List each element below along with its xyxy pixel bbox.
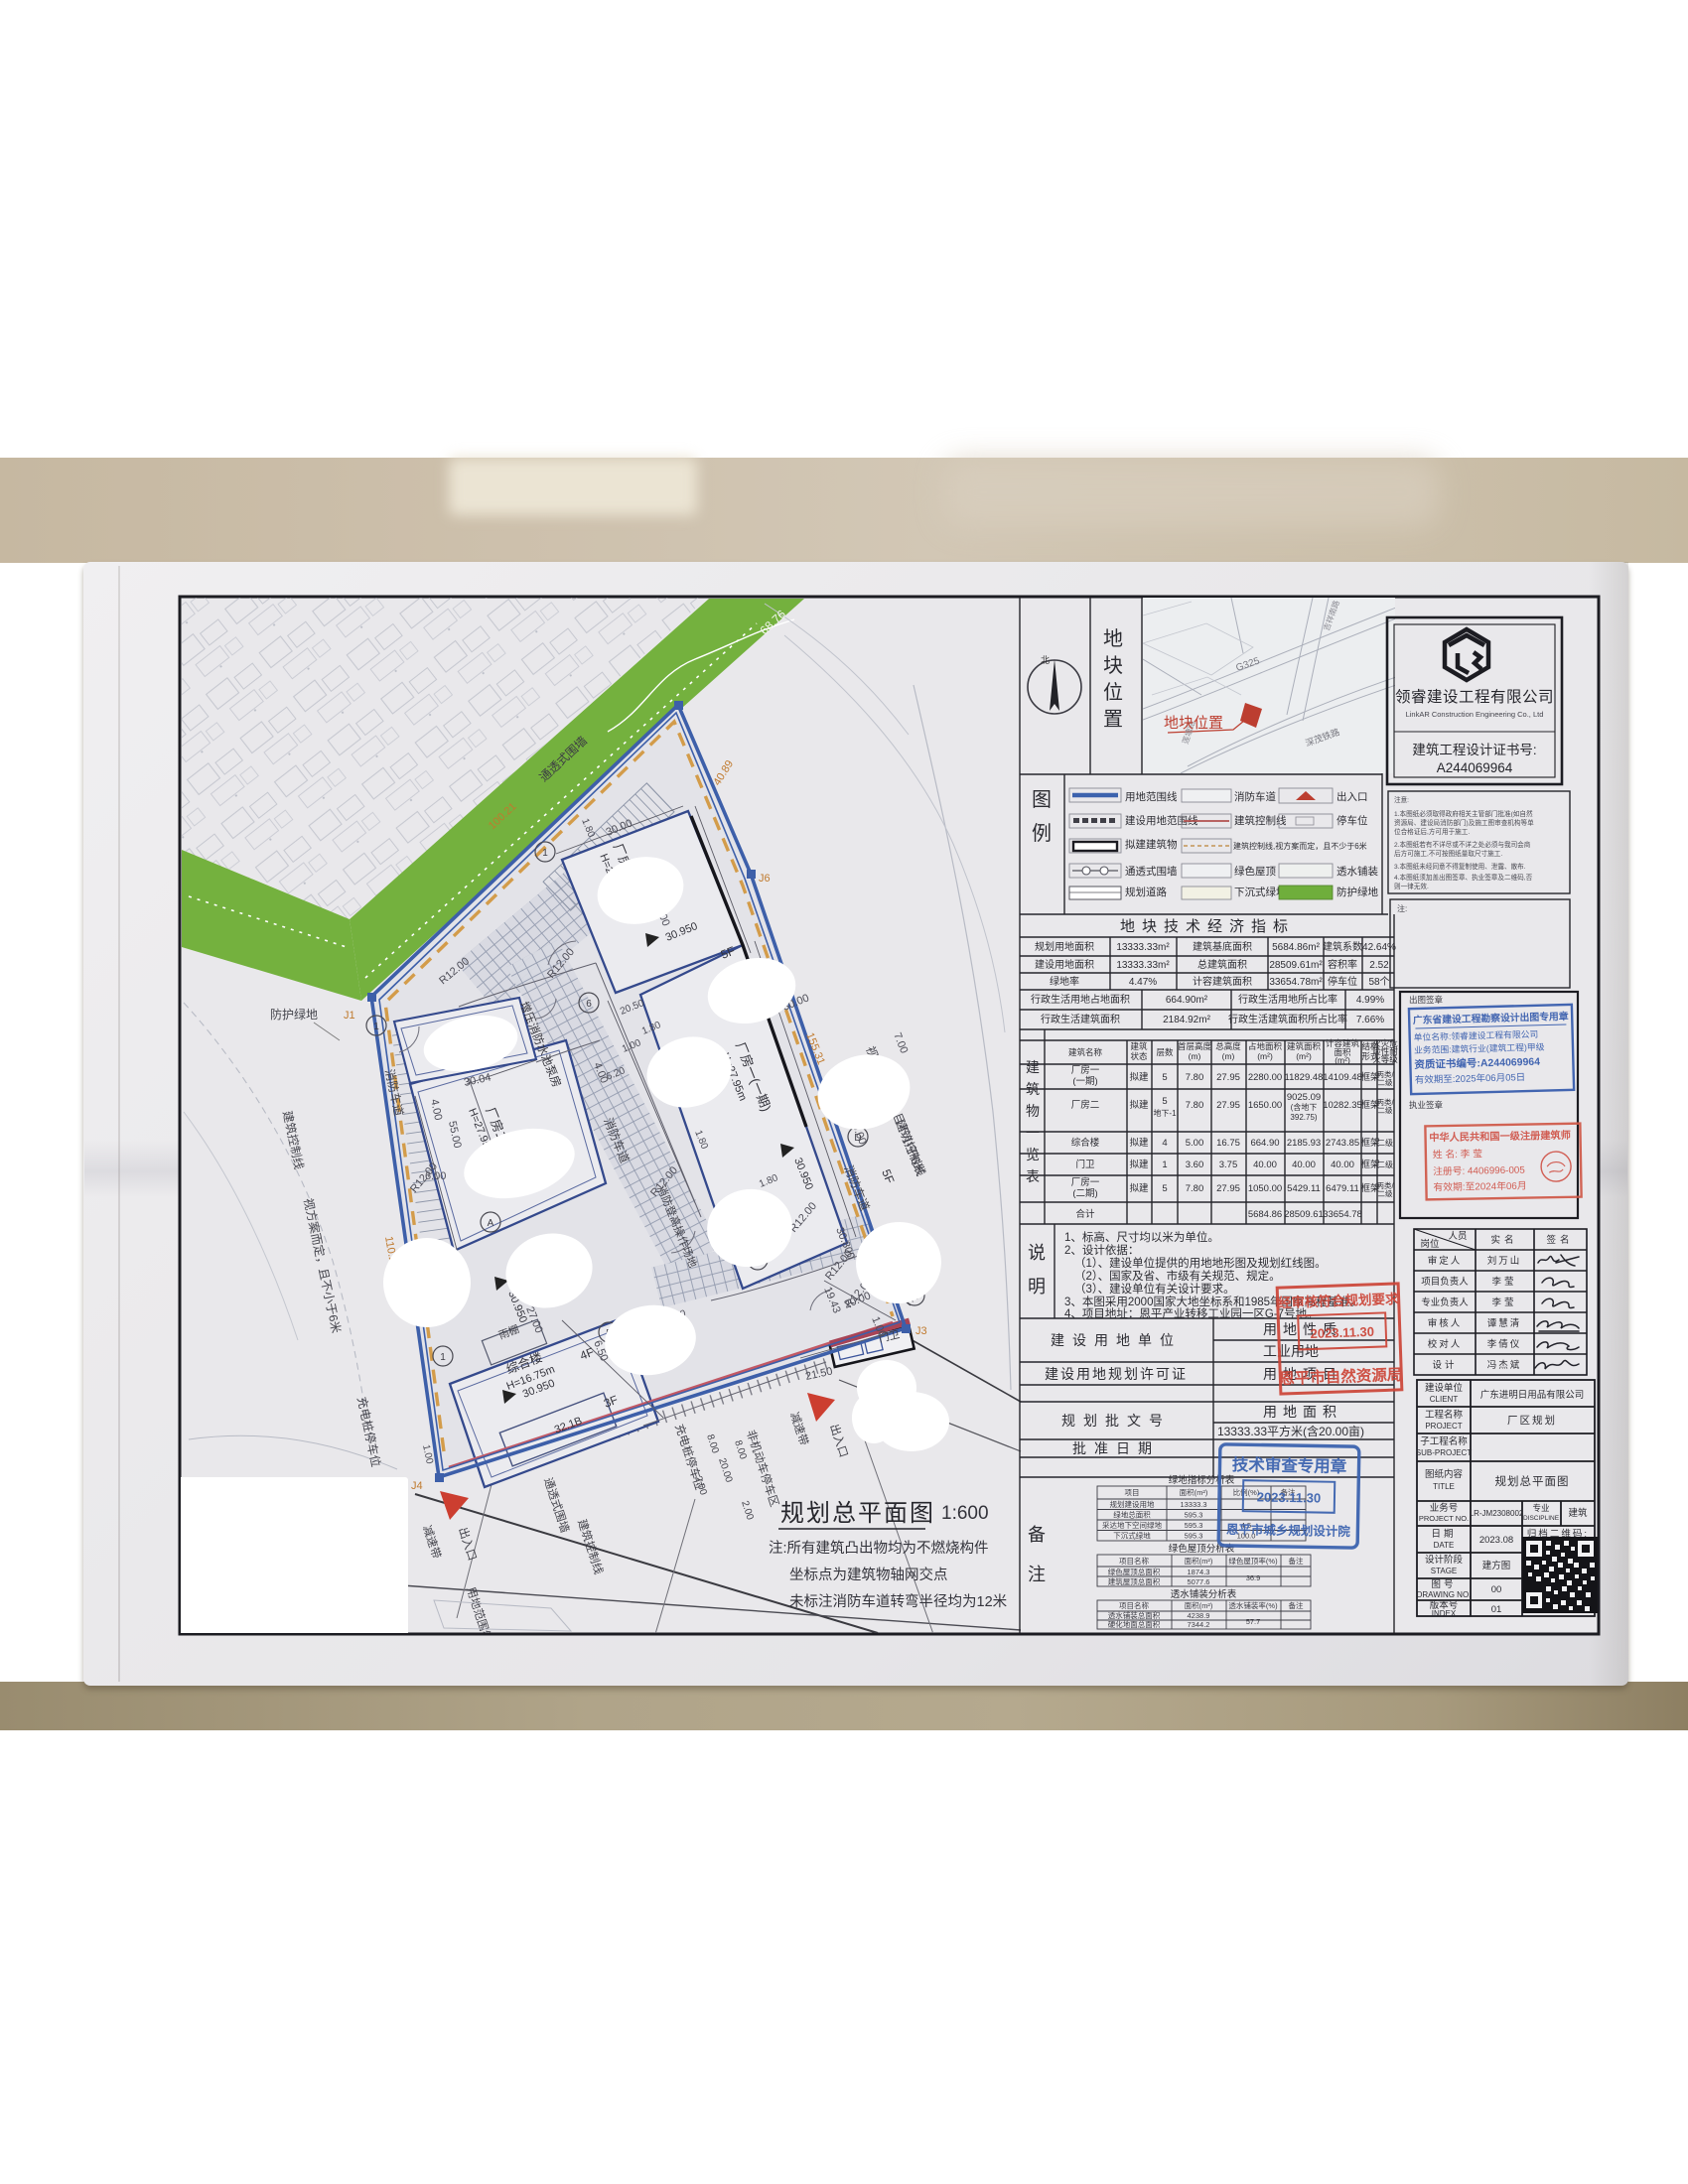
svg-text:绿色屋顶率(%): 绿色屋顶率(%) bbox=[1228, 1556, 1278, 1566]
svg-text:未标注消防车道转弯半径均为12米: 未标注消防车道转弯半径均为12米 bbox=[789, 1593, 1008, 1610]
svg-text:批准日期: 批准日期 bbox=[1072, 1440, 1160, 1456]
svg-text:刘万山: 刘万山 bbox=[1487, 1255, 1522, 1267]
svg-text:二级: 二级 bbox=[1378, 1105, 1394, 1115]
svg-text:面积(m²): 面积(m²) bbox=[1180, 1487, 1208, 1497]
svg-text:火等级: 火等级 bbox=[1372, 1054, 1398, 1064]
svg-text:层数: 层数 bbox=[1156, 1047, 1174, 1057]
svg-text:厂区规划: 厂区规划 bbox=[1507, 1414, 1557, 1427]
svg-text:2.52: 2.52 bbox=[1369, 960, 1389, 971]
svg-text:33654.78: 33654.78 bbox=[1323, 1209, 1362, 1220]
svg-text:注:所有建筑凸出物均为不燃烧构件: 注:所有建筑凸出物均为不燃烧构件 bbox=[769, 1539, 989, 1557]
svg-text:实名: 实名 bbox=[1490, 1234, 1517, 1246]
svg-text:DATE: DATE bbox=[1434, 1541, 1455, 1550]
svg-text:SUB-PROJECT: SUB-PROJECT bbox=[1416, 1448, 1473, 1457]
svg-text:4: 4 bbox=[1162, 1138, 1167, 1149]
svg-text:595.3: 595.3 bbox=[1185, 1532, 1203, 1541]
svg-text:28509.61: 28509.61 bbox=[1284, 1209, 1324, 1220]
svg-text:签名: 签名 bbox=[1546, 1234, 1573, 1246]
svg-text:块: 块 bbox=[1103, 654, 1123, 677]
svg-text:J6: J6 bbox=[759, 873, 771, 885]
svg-text:绿色屋顶: 绿色屋顶 bbox=[1234, 865, 1276, 878]
svg-text:1、标高、尺寸均以米为单位。: 1、标高、尺寸均以米为单位。 bbox=[1064, 1230, 1219, 1244]
svg-text:建筑面积: 建筑面积 bbox=[1287, 1041, 1322, 1051]
svg-text:14109.48: 14109.48 bbox=[1323, 1072, 1362, 1083]
svg-text:A244069964: A244069964 bbox=[1437, 760, 1513, 775]
svg-text:首层高度: 首层高度 bbox=[1178, 1041, 1212, 1051]
svg-text:28509.61m²: 28509.61m² bbox=[1269, 960, 1323, 971]
svg-text:LinkAR Construction Engineerin: LinkAR Construction Engineering Co., Ltd bbox=[1406, 710, 1544, 719]
svg-text:规划批文号: 规划批文号 bbox=[1061, 1413, 1171, 1429]
svg-text:(m²): (m²) bbox=[1257, 1051, 1273, 1061]
svg-text:J3: J3 bbox=[915, 1325, 927, 1337]
svg-text:则一律无效.: 则一律无效. bbox=[1394, 882, 1429, 890]
svg-text:（3）、建设单位有关设计要求。: （3）、建设单位有关设计要求。 bbox=[1074, 1282, 1235, 1296]
svg-text:透水铺装: 透水铺装 bbox=[1336, 865, 1378, 878]
svg-text:建设用地单位: 建设用地单位 bbox=[1051, 1332, 1182, 1348]
svg-text:注意:: 注意: bbox=[1394, 795, 1409, 804]
svg-text:PROJECT NO.: PROJECT NO. bbox=[1419, 1514, 1469, 1523]
svg-text:33654.78m²: 33654.78m² bbox=[1269, 977, 1323, 988]
svg-text:拟建建筑物: 拟建建筑物 bbox=[1125, 838, 1178, 851]
svg-text:绿地总面积: 绿地总面积 bbox=[1113, 1510, 1151, 1520]
svg-text:地块技术经济指标: 地块技术经济指标 bbox=[1120, 918, 1295, 935]
svg-text:13333.33m²: 13333.33m² bbox=[1116, 960, 1170, 971]
svg-text:项目负责人: 项目负责人 bbox=[1421, 1276, 1469, 1288]
svg-text:通透式围墙: 通透式围墙 bbox=[1125, 865, 1178, 878]
svg-text:设计阶段: 设计阶段 bbox=[1425, 1554, 1464, 1566]
svg-text:技术审查专用章: 技术审查专用章 bbox=[1232, 1454, 1347, 1476]
svg-text:出图签章: 出图签章 bbox=[1409, 995, 1444, 1005]
svg-text:行政生活建筑面积: 行政生活建筑面积 bbox=[1041, 1013, 1120, 1025]
svg-text:595.3: 595.3 bbox=[1185, 1521, 1203, 1530]
svg-text:览: 览 bbox=[1026, 1147, 1040, 1162]
svg-text:2.本图纸若有不详尽或不详之处必须与我司会商: 2.本图纸若有不详尽或不详之处必须与我司会商 bbox=[1394, 840, 1531, 849]
svg-text:建: 建 bbox=[1026, 1059, 1040, 1075]
svg-text:总建筑面积: 总建筑面积 bbox=[1197, 958, 1247, 971]
svg-text:LR-JM2308002: LR-JM2308002 bbox=[1470, 1509, 1524, 1518]
svg-text:INDEX: INDEX bbox=[1432, 1609, 1457, 1618]
svg-text:绿色屋顶总面积: 绿色屋顶总面积 bbox=[1108, 1567, 1161, 1576]
svg-text:5077.6: 5077.6 bbox=[1188, 1577, 1210, 1586]
svg-text:5.00: 5.00 bbox=[1186, 1138, 1204, 1149]
svg-text:建筑: 建筑 bbox=[1568, 1507, 1588, 1519]
svg-text:40.00: 40.00 bbox=[1253, 1160, 1277, 1170]
svg-text:审定人: 审定人 bbox=[1428, 1255, 1463, 1267]
svg-text:岗位: 岗位 bbox=[1420, 1238, 1440, 1250]
svg-text:392.75): 392.75) bbox=[1290, 1113, 1317, 1122]
svg-text:二级: 二级 bbox=[1378, 1188, 1394, 1198]
svg-text:1874.3: 1874.3 bbox=[1188, 1568, 1210, 1576]
svg-text:图: 图 bbox=[1032, 789, 1052, 811]
svg-text:建筑基底面积: 建筑基底面积 bbox=[1193, 940, 1252, 953]
svg-text:绿地指标分析表: 绿地指标分析表 bbox=[1169, 1474, 1235, 1486]
svg-text:2023.08: 2023.08 bbox=[1479, 1535, 1513, 1546]
svg-text:合计: 合计 bbox=[1075, 1208, 1095, 1220]
svg-text:13333.3: 13333.3 bbox=[1180, 1500, 1206, 1509]
svg-text:DRAWING NO.: DRAWING NO. bbox=[1417, 1590, 1472, 1599]
svg-text:1: 1 bbox=[373, 1022, 379, 1032]
svg-text:李倩仪: 李倩仪 bbox=[1487, 1338, 1522, 1350]
svg-text:项目名称: 项目名称 bbox=[1119, 1556, 1149, 1566]
svg-text:7.80: 7.80 bbox=[1186, 1183, 1204, 1194]
svg-text:计容建筑面积: 计容建筑面积 bbox=[1193, 975, 1252, 988]
svg-text:后方可施工,不可按图纸量取尺寸施工.: 后方可施工,不可按图纸量取尺寸施工. bbox=[1394, 849, 1502, 858]
svg-text:例: 例 bbox=[1032, 822, 1052, 845]
svg-text:地下-1: 地下-1 bbox=[1153, 1108, 1177, 1118]
svg-text:1: 1 bbox=[440, 1352, 446, 1363]
svg-text:7.80: 7.80 bbox=[1186, 1072, 1204, 1083]
svg-text:李莹: 李莹 bbox=[1491, 1276, 1516, 1288]
svg-text:27.95: 27.95 bbox=[1216, 1100, 1240, 1111]
svg-text:停车位: 停车位 bbox=[1336, 814, 1368, 827]
svg-text:北: 北 bbox=[1041, 655, 1050, 665]
svg-text:(二期): (二期) bbox=[1072, 1188, 1097, 1199]
svg-text:5684.86: 5684.86 bbox=[1248, 1209, 1282, 1220]
svg-text:(含地下: (含地下 bbox=[1291, 1102, 1318, 1112]
svg-text:(m): (m) bbox=[1189, 1051, 1201, 1061]
svg-text:5: 5 bbox=[1162, 1072, 1167, 1083]
svg-text:规划用地面积: 规划用地面积 bbox=[1035, 940, 1094, 953]
svg-text:二级: 二级 bbox=[1378, 1077, 1394, 1087]
svg-text:6479.11: 6479.11 bbox=[1326, 1183, 1359, 1194]
svg-text:4.99%: 4.99% bbox=[1356, 995, 1384, 1006]
svg-text:表: 表 bbox=[1026, 1168, 1040, 1184]
svg-text:出入口: 出入口 bbox=[1336, 790, 1368, 803]
svg-text:行政生活建筑面积所占比率: 行政生活建筑面积所占比率 bbox=[1228, 1013, 1347, 1025]
svg-text:置: 置 bbox=[1103, 709, 1123, 731]
svg-text:行政生活用地占地面积: 行政生活用地占地面积 bbox=[1031, 993, 1130, 1006]
svg-text:11829.48: 11829.48 bbox=[1285, 1072, 1324, 1083]
svg-text:建设用地规划许可证: 建设用地规划许可证 bbox=[1045, 1366, 1188, 1382]
svg-text:拟建: 拟建 bbox=[1129, 1099, 1149, 1111]
svg-text:建筑控制线,视方案而定，且不少于6米: 建筑控制线,视方案而定，且不少于6米 bbox=[1233, 841, 1367, 851]
svg-text:日期: 日期 bbox=[1431, 1529, 1456, 1540]
svg-text:3.60: 3.60 bbox=[1186, 1160, 1204, 1170]
svg-text:(m²): (m²) bbox=[1296, 1051, 1312, 1061]
svg-text:36.9: 36.9 bbox=[1246, 1573, 1261, 1582]
svg-text:消防车道: 消防车道 bbox=[1234, 790, 1276, 803]
svg-text:2743.85: 2743.85 bbox=[1326, 1138, 1359, 1149]
svg-text:4.47%: 4.47% bbox=[1129, 977, 1157, 988]
svg-text:40.00: 40.00 bbox=[1331, 1160, 1354, 1170]
svg-text:注:: 注: bbox=[1397, 903, 1407, 913]
svg-text:工业用地: 工业用地 bbox=[1263, 1343, 1319, 1359]
svg-text:CLIENT: CLIENT bbox=[1430, 1395, 1459, 1404]
svg-text:李莹: 李莹 bbox=[1491, 1297, 1516, 1308]
svg-text:5684.86m²: 5684.86m² bbox=[1272, 942, 1320, 953]
svg-text:3.75: 3.75 bbox=[1219, 1160, 1238, 1170]
svg-text:下沉式绿地: 下沉式绿地 bbox=[1113, 1531, 1151, 1541]
svg-text:说: 说 bbox=[1028, 1243, 1046, 1263]
svg-text:容积率: 容积率 bbox=[1328, 958, 1357, 971]
svg-text:专业: 专业 bbox=[1532, 1503, 1549, 1513]
svg-text:透水铺装总面积: 透水铺装总面积 bbox=[1108, 1610, 1161, 1620]
svg-text:备注: 备注 bbox=[1289, 1556, 1305, 1566]
svg-text:J4: J4 bbox=[411, 1480, 423, 1492]
svg-text:16.75: 16.75 bbox=[1216, 1138, 1240, 1149]
svg-text:地: 地 bbox=[1103, 627, 1123, 650]
svg-text:综合楼: 综合楼 bbox=[1071, 1137, 1100, 1149]
svg-text:42.64%: 42.64% bbox=[1362, 942, 1396, 953]
svg-text:厂房二: 厂房二 bbox=[1071, 1099, 1100, 1111]
svg-text:规划建设用地: 规划建设用地 bbox=[1110, 1499, 1155, 1509]
svg-text:4.本图纸须加盖出图签章、执业签章及二维码,否: 4.本图纸须加盖出图签章、执业签章及二维码,否 bbox=[1394, 873, 1533, 882]
svg-text:27.95: 27.95 bbox=[1216, 1072, 1240, 1083]
svg-text:图纸内容: 图纸内容 bbox=[1425, 1468, 1464, 1480]
svg-text:拟建: 拟建 bbox=[1129, 1159, 1149, 1170]
svg-text:注: 注 bbox=[1028, 1565, 1046, 1584]
svg-text:占地面积: 占地面积 bbox=[1248, 1041, 1283, 1051]
svg-text:门卫: 门卫 bbox=[1075, 1159, 1095, 1170]
svg-text:1:600: 1:600 bbox=[941, 1503, 989, 1524]
svg-text:1650.00: 1650.00 bbox=[1248, 1100, 1282, 1111]
svg-text:595.3: 595.3 bbox=[1185, 1511, 1203, 1520]
svg-text:总高度: 总高度 bbox=[1215, 1041, 1241, 1051]
svg-text:明: 明 bbox=[1028, 1277, 1046, 1297]
svg-text:物: 物 bbox=[1026, 1103, 1040, 1119]
svg-text:状态: 状态 bbox=[1130, 1051, 1148, 1061]
svg-text:01: 01 bbox=[1491, 1604, 1502, 1615]
svg-text:9025.09: 9025.09 bbox=[1287, 1092, 1321, 1103]
svg-text:1: 1 bbox=[542, 848, 548, 859]
svg-text:透水铺装分析表: 透水铺装分析表 bbox=[1171, 1588, 1237, 1600]
svg-text:A: A bbox=[488, 1218, 494, 1229]
svg-text:厂房一: 厂房一 bbox=[1071, 1176, 1100, 1188]
svg-text:防护绿地: 防护绿地 bbox=[1336, 886, 1378, 898]
svg-text:5: 5 bbox=[1162, 1183, 1167, 1194]
svg-text:审核人: 审核人 bbox=[1428, 1317, 1463, 1329]
svg-text:谭慧清: 谭慧清 bbox=[1487, 1317, 1522, 1329]
svg-text:1: 1 bbox=[1162, 1160, 1167, 1170]
svg-text:3.本图纸未经同意不得复制使用、泄露、散布.: 3.本图纸未经同意不得复制使用、泄露、散布. bbox=[1394, 862, 1526, 871]
svg-text:备: 备 bbox=[1028, 1525, 1046, 1545]
svg-text:2023.11.30: 2023.11.30 bbox=[1257, 1489, 1322, 1505]
svg-text:建筑: 建筑 bbox=[1130, 1041, 1148, 1051]
svg-text:冯杰斌: 冯杰斌 bbox=[1487, 1359, 1522, 1371]
svg-text:建筑屋顶总面积: 建筑屋顶总面积 bbox=[1108, 1576, 1161, 1586]
svg-text:（2）、国家及省、市级有关规范、规定。: （2）、国家及省、市级有关规范、规定。 bbox=[1074, 1269, 1281, 1283]
svg-text:姓 名: 李 莹: 姓 名: 李 莹 bbox=[1433, 1147, 1482, 1160]
svg-text:STAGE: STAGE bbox=[1431, 1567, 1458, 1575]
svg-text:规划道路: 规划道路 bbox=[1125, 886, 1167, 898]
svg-text:拟建: 拟建 bbox=[1129, 1137, 1149, 1149]
svg-text:7.66%: 7.66% bbox=[1356, 1015, 1384, 1025]
svg-text:比例(%): 比例(%) bbox=[1233, 1487, 1260, 1497]
svg-text:建设单位: 建设单位 bbox=[1425, 1382, 1464, 1394]
svg-text:绿地率: 绿地率 bbox=[1050, 975, 1079, 988]
svg-text:建筑名称: 建筑名称 bbox=[1068, 1047, 1103, 1057]
svg-text:坐标点为建筑物轴网交点: 坐标点为建筑物轴网交点 bbox=[789, 1566, 948, 1583]
svg-text:位合格证后,方可用于施工.: 位合格证后,方可用于施工. bbox=[1394, 827, 1470, 836]
svg-text:业务号: 业务号 bbox=[1430, 1502, 1459, 1514]
svg-text:2、设计依据：: 2、设计依据： bbox=[1064, 1243, 1139, 1257]
svg-text:13333.33平方米(含20.00亩): 13333.33平方米(含20.00亩) bbox=[1217, 1424, 1364, 1438]
svg-text:10282.35: 10282.35 bbox=[1323, 1100, 1362, 1111]
svg-text:2184.92m²: 2184.92m² bbox=[1163, 1015, 1210, 1025]
svg-text:2023.11.30: 2023.11.30 bbox=[1310, 1324, 1374, 1341]
svg-text:停车位: 停车位 bbox=[1328, 975, 1357, 988]
svg-text:备注: 备注 bbox=[1289, 1600, 1305, 1610]
svg-text:工程名称: 工程名称 bbox=[1425, 1409, 1464, 1421]
svg-text:13333.33m²: 13333.33m² bbox=[1116, 942, 1170, 953]
svg-text:子工程名称: 子工程名称 bbox=[1420, 1435, 1468, 1447]
svg-text:广东进明日用品有限公司: 广东进明日用品有限公司 bbox=[1480, 1389, 1585, 1401]
svg-text:资源局、建设局消防部门)及施工图审查机构等单: 资源局、建设局消防部门)及施工图审查机构等单 bbox=[1394, 818, 1534, 827]
svg-text:DISCIPLINE: DISCIPLINE bbox=[1523, 1515, 1560, 1522]
svg-text:二级: 二级 bbox=[1377, 1160, 1393, 1169]
svg-text:行政生活用地所占比率: 行政生活用地所占比率 bbox=[1238, 993, 1337, 1006]
svg-text:拟建: 拟建 bbox=[1129, 1182, 1149, 1194]
svg-text:筑: 筑 bbox=[1026, 1081, 1040, 1097]
svg-text:项目名称: 项目名称 bbox=[1119, 1600, 1149, 1610]
svg-text:(一期): (一期) bbox=[1072, 1076, 1097, 1087]
svg-text:采达地下空间绿地: 采达地下空间绿地 bbox=[1102, 1520, 1162, 1530]
svg-text:58个: 58个 bbox=[1368, 976, 1389, 988]
svg-text:恩平市城乡规划设计院: 恩平市城乡规划设计院 bbox=[1226, 1522, 1351, 1539]
svg-text:建筑工程设计证书号:: 建筑工程设计证书号: bbox=[1412, 743, 1536, 757]
svg-text:用地范围线: 用地范围线 bbox=[1125, 790, 1178, 803]
svg-text:664.90: 664.90 bbox=[1250, 1138, 1279, 1149]
svg-text:2280.00: 2280.00 bbox=[1248, 1072, 1282, 1083]
svg-text:（1）、建设单位提供的用地地形图及规划红线图。: （1）、建设单位提供的用地地形图及规划红线图。 bbox=[1074, 1256, 1327, 1270]
svg-text:建筑系数: 建筑系数 bbox=[1323, 940, 1362, 953]
svg-text:硬化地面总面积: 硬化地面总面积 bbox=[1108, 1619, 1161, 1629]
svg-text:地块位置: 地块位置 bbox=[1164, 715, 1223, 732]
svg-text:664.90m²: 664.90m² bbox=[1166, 995, 1208, 1006]
svg-text:图号: 图号 bbox=[1431, 1579, 1456, 1590]
svg-text:PROJECT: PROJECT bbox=[1425, 1422, 1462, 1431]
svg-text:厂房一: 厂房一 bbox=[1071, 1064, 1100, 1076]
svg-text:7344.2: 7344.2 bbox=[1188, 1620, 1210, 1629]
svg-text:专业负责人: 专业负责人 bbox=[1421, 1297, 1469, 1308]
svg-text:二级: 二级 bbox=[1377, 1138, 1393, 1148]
svg-text:位: 位 bbox=[1103, 681, 1123, 704]
svg-text:一: 一 bbox=[1026, 1125, 1040, 1141]
svg-text:7.80: 7.80 bbox=[1186, 1100, 1204, 1111]
svg-text:27.95: 27.95 bbox=[1216, 1183, 1240, 1194]
svg-text:40.00: 40.00 bbox=[1292, 1160, 1316, 1170]
svg-text:规划总平面图: 规划总平面图 bbox=[1495, 1474, 1570, 1488]
svg-text:防护绿地: 防护绿地 bbox=[270, 1007, 318, 1022]
svg-text:规划总平面图: 规划总平面图 bbox=[780, 1500, 935, 1527]
svg-text:4238.9: 4238.9 bbox=[1188, 1611, 1210, 1620]
svg-text:建方图: 建方图 bbox=[1482, 1560, 1511, 1571]
svg-text:(m²): (m²) bbox=[1335, 1055, 1350, 1065]
svg-text:00: 00 bbox=[1491, 1584, 1502, 1595]
svg-text:(m): (m) bbox=[1222, 1051, 1235, 1061]
svg-text:1.本图纸必须取得政府相关主管部门批准(如自然: 1.本图纸必须取得政府相关主管部门批准(如自然 bbox=[1394, 809, 1533, 818]
svg-text:6: 6 bbox=[586, 999, 592, 1010]
svg-text:2185.93: 2185.93 bbox=[1287, 1138, 1321, 1149]
svg-text:5: 5 bbox=[1162, 1096, 1167, 1107]
svg-text:57.7: 57.7 bbox=[1246, 1617, 1261, 1626]
svg-text:项目: 项目 bbox=[1125, 1488, 1140, 1497]
svg-text:用地面积: 用地面积 bbox=[1263, 1404, 1342, 1420]
svg-text:面积(m²): 面积(m²) bbox=[1185, 1556, 1213, 1566]
svg-text:校对人: 校对人 bbox=[1428, 1338, 1463, 1350]
svg-text:领睿建设工程有限公司: 领睿建设工程有限公司 bbox=[1395, 688, 1554, 706]
svg-text:1050.00: 1050.00 bbox=[1248, 1183, 1282, 1194]
svg-text:TITLE: TITLE bbox=[1433, 1482, 1455, 1491]
svg-text:设计: 设计 bbox=[1432, 1359, 1457, 1371]
svg-text:人员: 人员 bbox=[1448, 1231, 1467, 1242]
svg-text:J1: J1 bbox=[344, 1010, 355, 1022]
svg-text:建设用地面积: 建设用地面积 bbox=[1035, 958, 1094, 971]
svg-text:拟建: 拟建 bbox=[1129, 1071, 1149, 1083]
svg-text:执业签章: 执业签章 bbox=[1409, 1100, 1444, 1110]
svg-text:透水铺装率(%): 透水铺装率(%) bbox=[1228, 1600, 1278, 1610]
svg-text:面积(m²): 面积(m²) bbox=[1185, 1600, 1213, 1610]
svg-text:5429.11: 5429.11 bbox=[1287, 1183, 1321, 1194]
